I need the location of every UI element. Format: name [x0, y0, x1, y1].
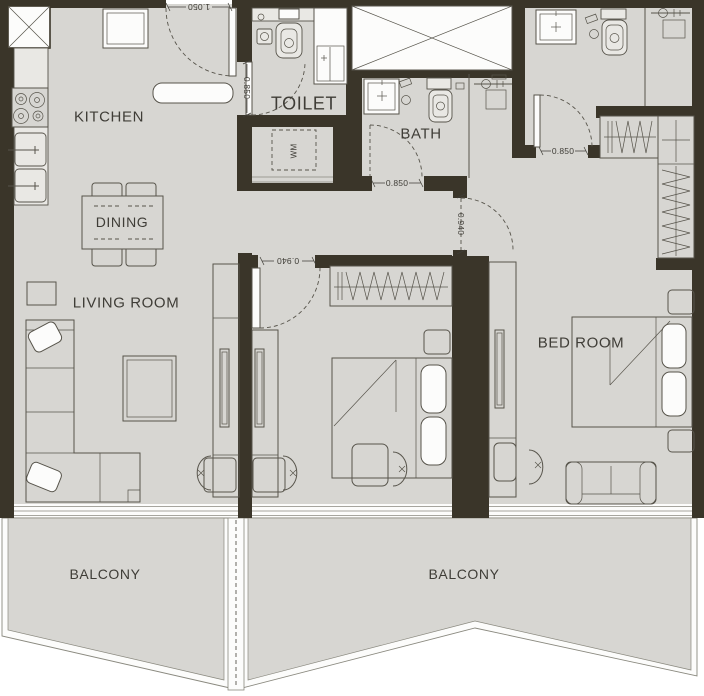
floorplan: KITCHEN TOILET BATH DINING LIVING ROOM B…	[0, 0, 704, 696]
column-marker	[8, 6, 50, 48]
bath-label: BATH	[400, 126, 441, 143]
living-room-label: LIVING ROOM	[73, 295, 180, 312]
toilet-label: TOILET	[271, 94, 337, 115]
washing-machine-label: WM	[290, 144, 299, 159]
bedroom-label: BED ROOM	[538, 335, 624, 352]
wc-icon	[276, 23, 302, 58]
balcony-left-label: BALCONY	[69, 566, 140, 582]
ensuite-door-dimension: 0.850	[552, 146, 574, 156]
bath-door-dimension: 0.850	[386, 178, 408, 188]
south-windows	[10, 504, 694, 518]
bath-wc-icon	[429, 90, 452, 122]
bedroom2-door-dimension: 0.940	[456, 213, 466, 235]
ensuite-basin-icon	[536, 10, 576, 44]
bath-basin-icon	[364, 79, 399, 114]
balcony-left-shape	[2, 518, 230, 688]
dining-label: DINING	[96, 214, 149, 230]
kitchen-label: KITCHEN	[74, 109, 144, 126]
bedroom1-door-dimension: 0.940	[277, 256, 299, 266]
balcony-right-shape	[242, 518, 697, 688]
balcony-divider	[228, 518, 244, 690]
toilet-shower-icon	[314, 8, 347, 84]
balcony-right-label: BALCONY	[428, 566, 499, 582]
ensuite-wc-icon	[602, 20, 627, 55]
toilet-door-dimension: 0.850	[242, 77, 252, 99]
stove-icon	[12, 88, 48, 127]
entrance-dimension: 1.050	[188, 2, 210, 12]
bedroom1-wardrobe	[330, 266, 452, 306]
services-shaft	[352, 6, 512, 70]
